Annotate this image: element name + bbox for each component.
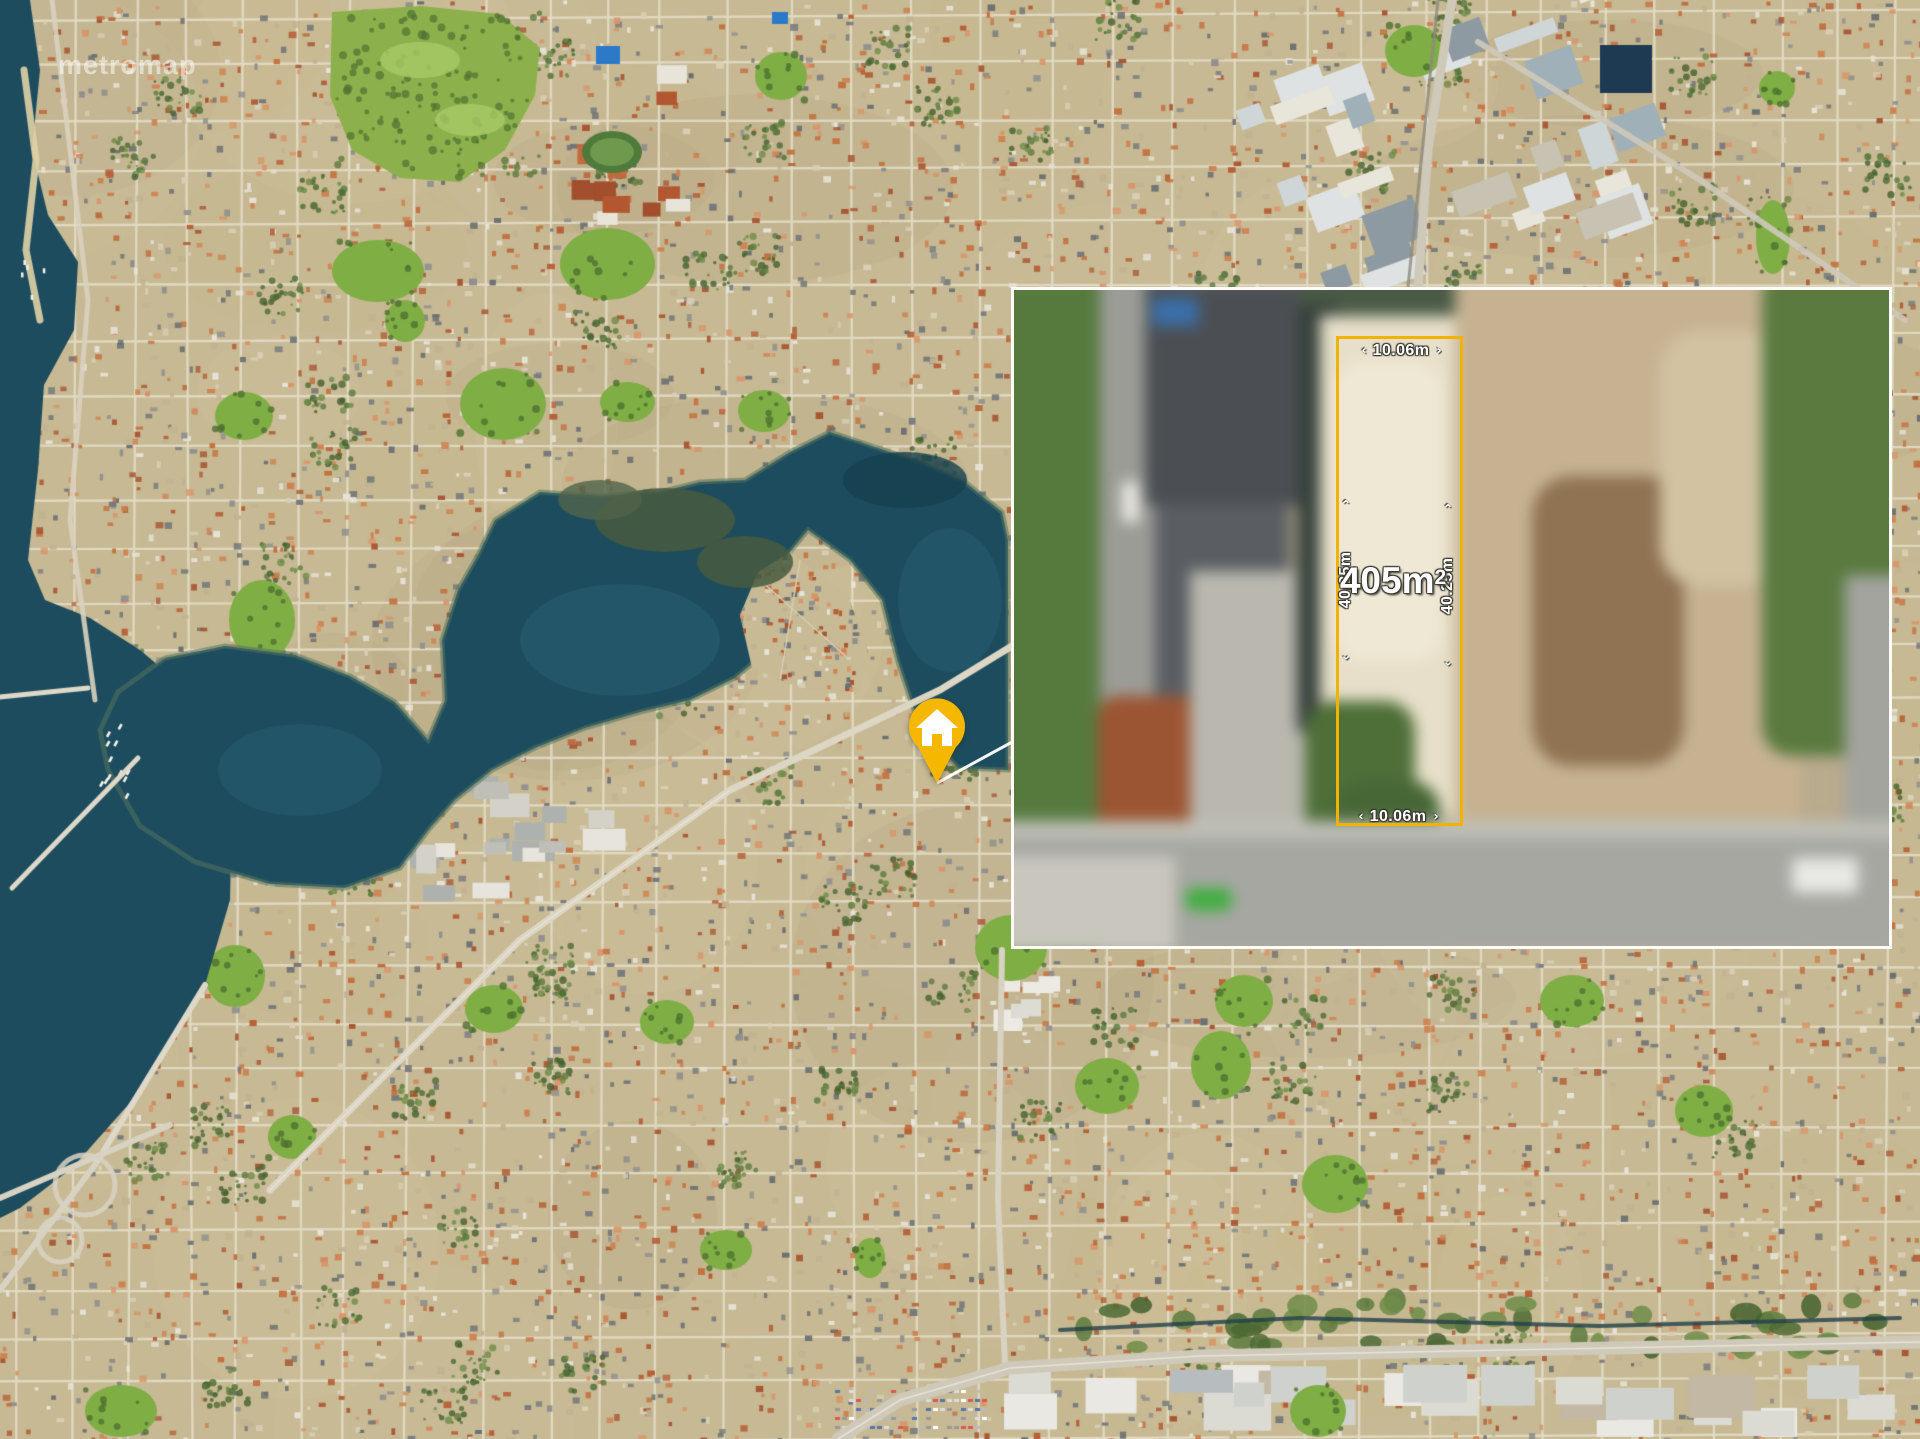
inset-green-car (1185, 888, 1232, 911)
dim-arrow-down-icon: ⌄ (1443, 655, 1454, 670)
aerial-photo-stage: metromap (0, 0, 1920, 1439)
dim-arrow-down-icon: ⌄ (1341, 649, 1352, 664)
lot-area-label: 405m2 (1340, 560, 1446, 602)
dim-arrow-up-icon: ⌃ (1443, 503, 1454, 518)
lot-dim-bottom: 10.06m (1370, 808, 1427, 826)
dim-arrow-right-icon: › (1436, 344, 1441, 359)
dim-arrow-right-icon: › (1433, 810, 1438, 825)
inset-solar-panels (1152, 298, 1198, 326)
dim-arrow-left-icon: ‹ (1361, 344, 1366, 359)
inset-white-truck (1792, 858, 1858, 893)
inset-panel: 10.06m 10.06m 40.25m 40.25m 405m2 ⌃ ⌄ ⌃ … (1011, 287, 1892, 949)
lot-area-value: 405m (1340, 560, 1435, 601)
inset-van (1122, 481, 1139, 523)
dim-arrow-up-icon: ⌃ (1341, 499, 1352, 514)
lot-dim-top: 10.06m (1373, 342, 1430, 360)
lot-area-superscript: 2 (1434, 566, 1446, 589)
dim-arrow-left-icon: ‹ (1358, 810, 1363, 825)
inset-concrete-bottom-left (1011, 856, 1175, 949)
property-pin (905, 697, 969, 785)
metromap-watermark: metromap (58, 50, 197, 81)
